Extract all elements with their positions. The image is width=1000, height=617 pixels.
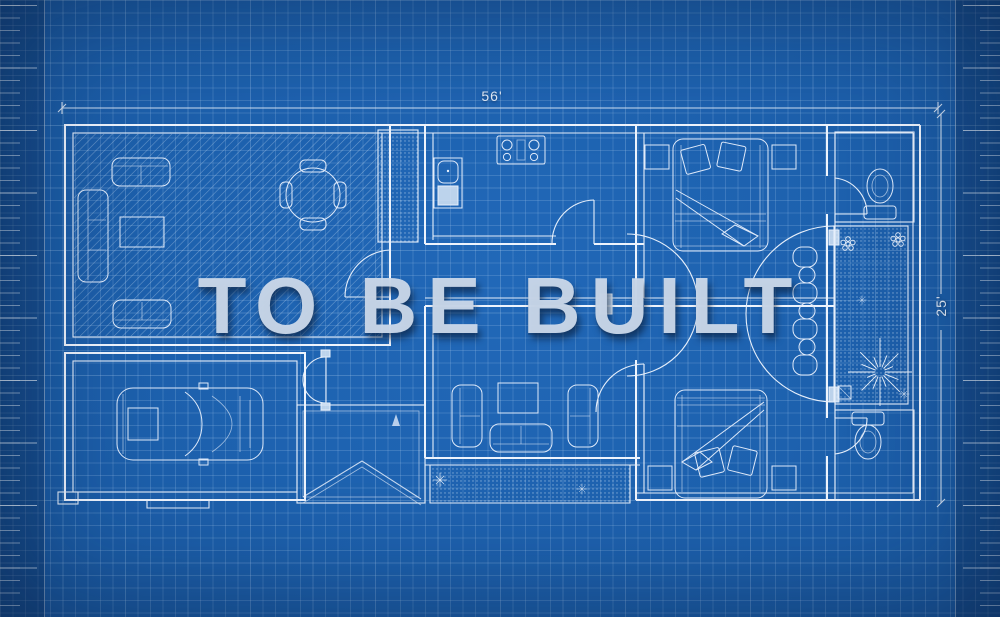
garage-door-notch <box>147 500 209 508</box>
entry-arrow <box>392 414 400 426</box>
pillow <box>727 445 757 475</box>
pantry <box>378 130 418 242</box>
bed <box>675 390 767 498</box>
breakfast-nook <box>746 226 834 402</box>
pillow <box>717 142 747 172</box>
nightstand <box>648 466 672 490</box>
lounge-chair <box>793 355 817 375</box>
bathroom-top-door <box>835 178 867 214</box>
side-table <box>799 267 815 283</box>
hall-door-leaf <box>600 294 612 314</box>
side-table <box>799 339 815 355</box>
pillow <box>694 447 724 477</box>
loveseat-right <box>568 385 598 447</box>
french-doors <box>303 350 330 410</box>
interior-wall-kitchen-bedroom <box>636 125 644 306</box>
kitchen-door <box>552 200 594 244</box>
stove <box>497 136 545 164</box>
patio <box>835 226 912 406</box>
blanket <box>682 402 764 470</box>
nightstand <box>772 466 796 490</box>
kitchen <box>425 125 644 244</box>
entry-vestibule <box>297 350 425 505</box>
toilet <box>864 169 896 219</box>
garage <box>58 353 305 508</box>
blanket <box>676 190 758 246</box>
nightstand <box>645 145 669 169</box>
dimension-height-label: 25' <box>933 281 949 331</box>
sofa-center <box>490 424 552 452</box>
blueprint-canvas: 56' 25' TO BE BUILT <box>0 0 1000 617</box>
garage-step <box>58 492 78 504</box>
living-room <box>65 125 390 345</box>
dimension-width-label: 56' <box>462 88 522 104</box>
bedroom-top <box>645 139 796 251</box>
tv-console <box>498 383 538 413</box>
lounge-chair <box>793 319 817 339</box>
loveseat-left <box>452 385 482 447</box>
car-icon <box>117 383 263 465</box>
porch <box>430 465 630 503</box>
sink-refrigerator-unit <box>434 158 462 208</box>
family-room <box>425 383 640 465</box>
lounge-chair <box>793 247 817 267</box>
nightstand <box>772 145 796 169</box>
bathroom-bottom <box>835 410 914 500</box>
toilet <box>852 412 884 459</box>
bathroom-top <box>835 132 914 222</box>
bed <box>673 139 768 251</box>
lounge-chair <box>793 283 817 303</box>
hallway-wall <box>425 234 834 458</box>
pillow <box>680 144 711 175</box>
bathroom-bottom-door <box>835 418 867 454</box>
